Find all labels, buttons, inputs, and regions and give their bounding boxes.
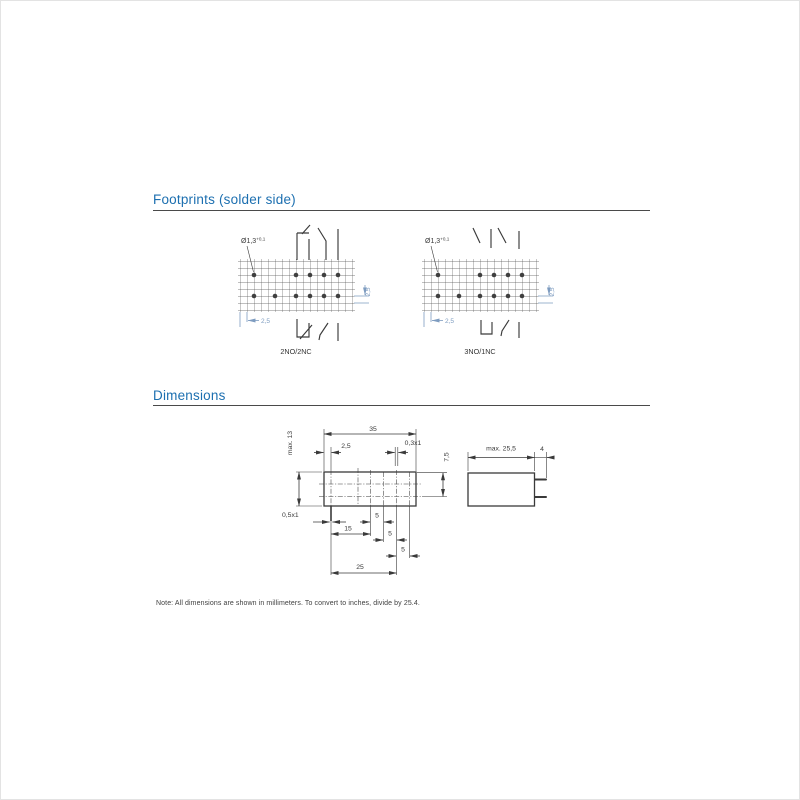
dim-pin-cross-top-label: 0,3x1 (405, 440, 422, 447)
dim-row-pitch-label: 7,5 (444, 452, 451, 462)
dimension-side-view: max. 25,5 4 (468, 446, 554, 507)
svg-text:2,5: 2,5 (549, 287, 556, 296)
pin-centerlines (331, 468, 410, 506)
dim-pin-inset-label: 2,5 (341, 443, 351, 450)
datasheet-page: Footprints (solder side) Dimensions Note… (0, 0, 800, 800)
dim-overall-height-label: max. 13 (287, 431, 294, 455)
footprint-right-pitch-y-dim: 2,5 (538, 285, 556, 303)
footprint-left: Ø1,3+0,1 2,5 2,5 2NO/2NC (238, 225, 372, 356)
dim-overall-length-label: max. 25,5 (486, 446, 516, 453)
dim-pin-length-label: 4 (540, 446, 544, 453)
dim-overall-width-label: 35 (369, 426, 377, 433)
technical-drawing: Ø1,3+0,1 2,5 2,5 2NO/2NC (1, 1, 800, 800)
pin-row-centerlines (319, 484, 421, 497)
dim-pin-cross-left-label: 0,5x1 (282, 512, 299, 519)
footprint-right-pitch-x-dim: 2,5 (424, 312, 454, 327)
extension-lines (296, 429, 447, 575)
footprint-left-pitch-y-dim: 2,5 (354, 285, 372, 303)
svg-text:2,5: 2,5 (261, 318, 270, 325)
dim-pitch-15-label: 15 (344, 526, 352, 533)
footprint-right-bottom-contact-symbols (481, 320, 519, 338)
dim-overall-span-label: 25 (356, 564, 364, 571)
svg-text:2,5: 2,5 (365, 287, 372, 296)
footprint-right: Ø1,3+0,1 2,5 2,5 3NO/1NC (422, 228, 556, 356)
footprint-left-grid (238, 259, 355, 312)
footprint-right-top-contact-symbols (473, 228, 519, 249)
dim-pitch-5b-label: 5 (388, 531, 392, 538)
footprint-right-variant-label: 3NO/1NC (464, 347, 495, 356)
dim-pitch-5a-label: 5 (375, 513, 379, 520)
footprint-left-pitch-x-dim: 2,5 (240, 312, 270, 327)
relay-outline-side-view (468, 473, 535, 506)
footprint-left-bottom-contact-symbols (297, 319, 338, 341)
footprint-left-top-contact-symbols (297, 225, 338, 260)
svg-text:2,5: 2,5 (445, 318, 454, 325)
footprint-left-hole-label: Ø1,3+0,1 (241, 236, 266, 245)
dim-pitch-5c-label: 5 (401, 547, 405, 554)
footprint-right-grid (422, 259, 539, 312)
footprint-left-variant-label: 2NO/2NC (280, 347, 311, 356)
dimension-top-view: 35 2,5 0,3x1 max. 13 7,5 0,5x1 5 (282, 426, 451, 575)
footprint-right-hole-label: Ø1,3+0,1 (425, 236, 450, 245)
relay-outline-top-view (324, 472, 416, 506)
